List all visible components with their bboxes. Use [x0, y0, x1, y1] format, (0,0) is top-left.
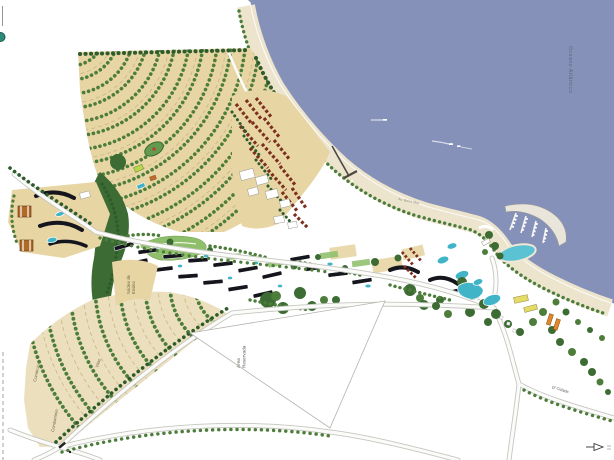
- pier-boat: [351, 180, 353, 182]
- road-to-city-label: p/ Cidade: [552, 384, 571, 394]
- hotel-cluster: [8, 182, 110, 258]
- park-feature: [152, 147, 156, 151]
- legend-marker-icon: [0, 33, 5, 42]
- site-plan-map: Oceano Atlântico Av. Beira Mar: [0, 0, 614, 460]
- master-plan-canvas: Oceano Atlântico Av. Beira Mar: [0, 0, 614, 460]
- direction-arrow-icon: [586, 444, 611, 451]
- ocean-label: Oceano Atlântico: [567, 46, 573, 93]
